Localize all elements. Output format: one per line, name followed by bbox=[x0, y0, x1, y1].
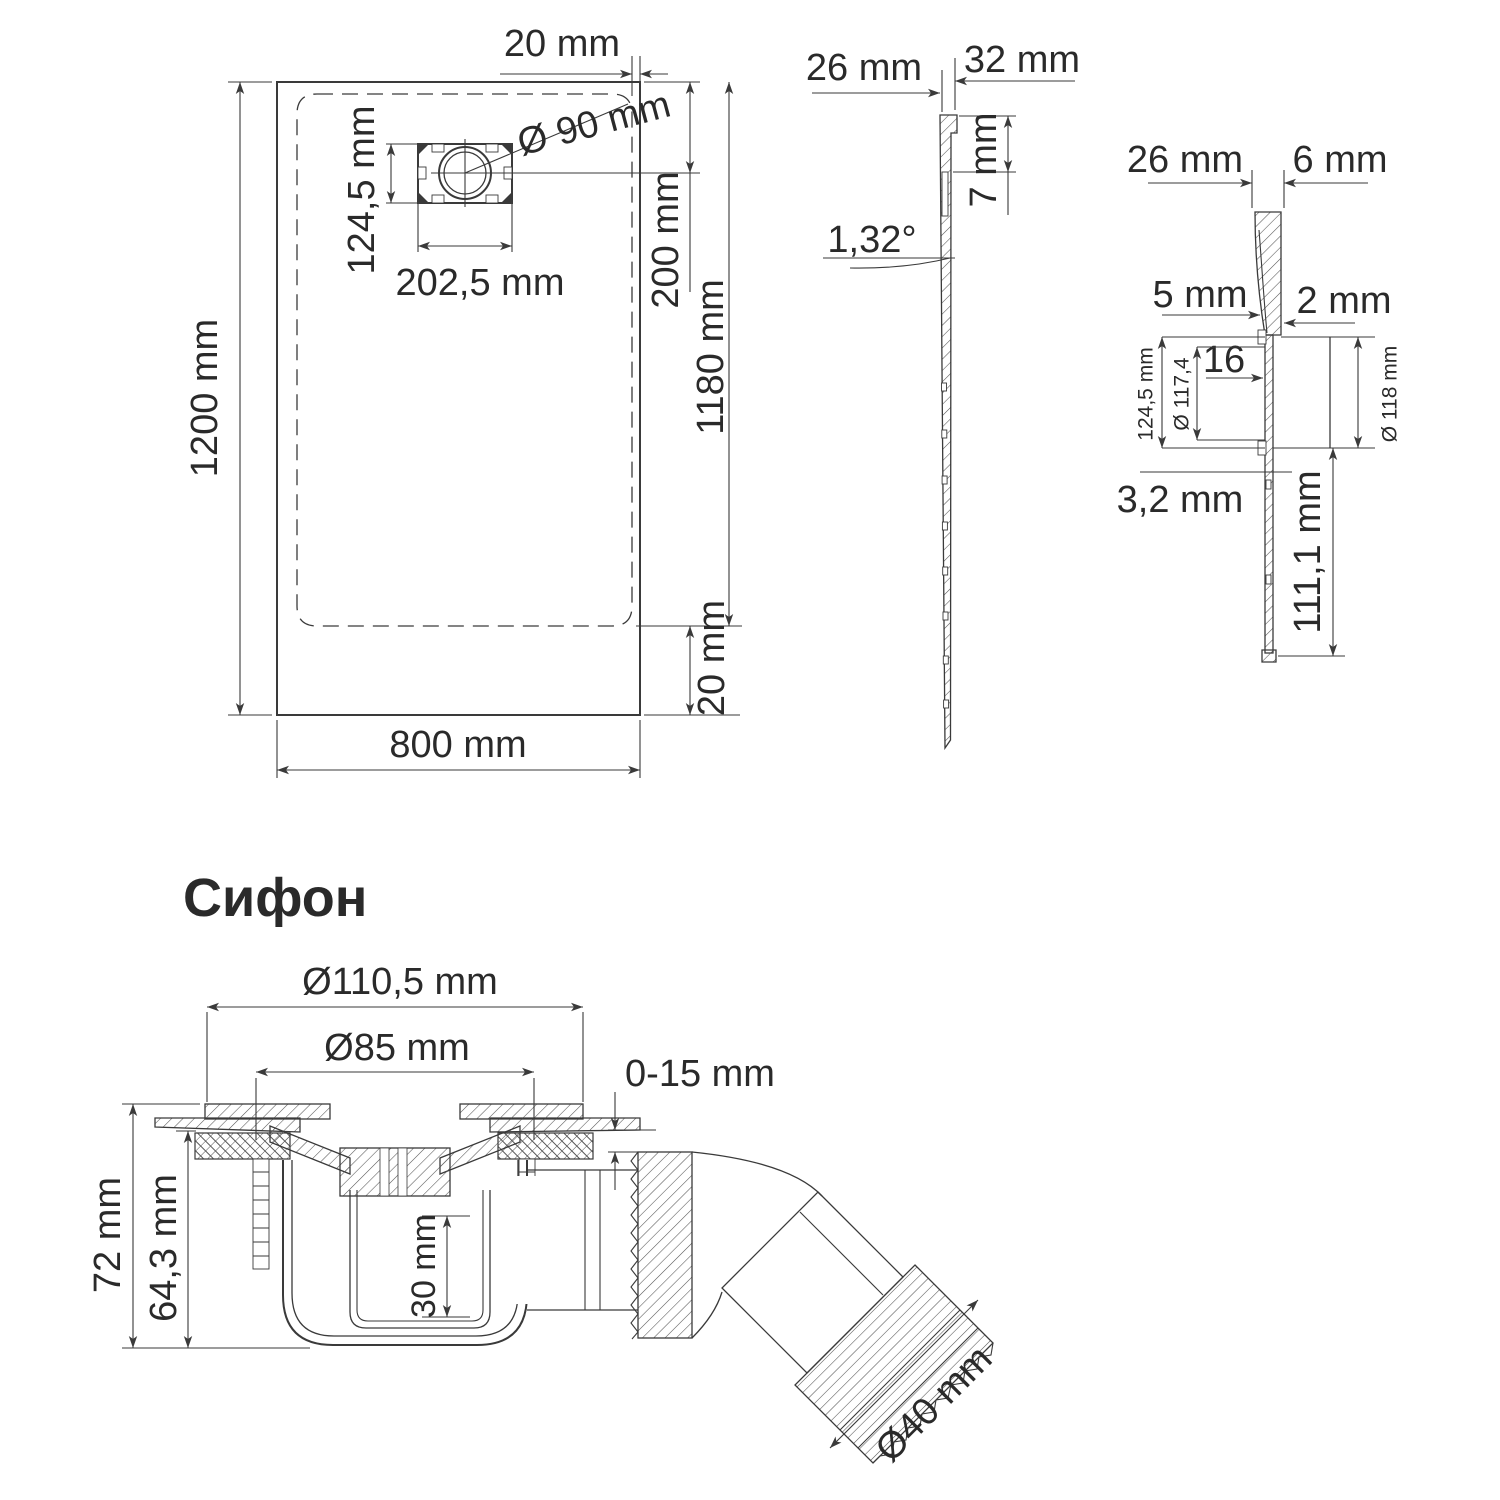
dim-siphon-trap-depth: 30 mm bbox=[405, 1214, 470, 1318]
dim-section-edge-height: 7 mm bbox=[953, 113, 1016, 216]
flange-plate-left bbox=[205, 1104, 330, 1119]
dim-label: 3,2 mm bbox=[1117, 479, 1244, 521]
dim-label: 800 mm bbox=[389, 724, 526, 766]
dim-label: 1,32° bbox=[827, 219, 916, 261]
dim-label: 16 bbox=[1203, 339, 1245, 381]
dim-label: 64,3 mm bbox=[143, 1174, 185, 1322]
dim-section-edge-top-width: 26 mm bbox=[806, 47, 942, 112]
section-notch bbox=[942, 383, 947, 391]
dim-plan-offset-bottom: 20 mm bbox=[644, 600, 740, 716]
dim-plan-drain-box-height: 124,5 mm bbox=[341, 106, 418, 275]
section-notch bbox=[942, 430, 947, 438]
dim-plan-length: 1200 mm bbox=[184, 82, 272, 715]
section-notch bbox=[943, 567, 948, 575]
grate-slot bbox=[398, 1148, 407, 1196]
dim-label: 20 mm bbox=[691, 600, 733, 716]
clamp-skirt-left bbox=[253, 1159, 269, 1269]
dim-label: 1200 mm bbox=[184, 319, 226, 477]
flange-plate-right bbox=[460, 1104, 583, 1119]
dim-label: 26 mm bbox=[1127, 139, 1243, 181]
dim-detail-gap: 2 mm bbox=[1284, 280, 1392, 323]
dim-label: 72 mm bbox=[87, 1177, 129, 1293]
dim-label: 30 mm bbox=[405, 1214, 443, 1318]
tray-outline bbox=[277, 82, 640, 715]
dim-label: 111,1 mm bbox=[1287, 470, 1329, 633]
section-notch bbox=[942, 522, 947, 530]
section-gasket bbox=[942, 172, 948, 216]
drain-notch bbox=[432, 195, 444, 203]
drain-notch bbox=[486, 195, 498, 203]
detail-view: 26 mm 6 mm 5 mm 2 mm 16 124,5 mm bbox=[1117, 139, 1402, 662]
drain-notch bbox=[486, 144, 498, 152]
dim-label: 1180 mm bbox=[690, 279, 732, 435]
dim-section-slope-angle: 1,32° bbox=[823, 219, 955, 268]
socket-mask bbox=[514, 1176, 640, 1304]
technical-drawing-page: 20 mm Ø 90 mm 124,5 mm 202,5 mm 200 bbox=[0, 0, 1500, 1500]
dim-label: 32 mm bbox=[964, 39, 1080, 81]
detail-notch bbox=[1266, 480, 1271, 489]
dim-label: 200 mm bbox=[645, 171, 687, 308]
section-view: 26 mm 32 mm 7 mm 1,32° bbox=[806, 39, 1080, 748]
dim-label: 20 mm bbox=[504, 23, 620, 65]
drawing-svg: 20 mm Ø 90 mm 124,5 mm 202,5 mm 200 bbox=[0, 0, 1500, 1500]
siphon-title: Сифон bbox=[183, 868, 367, 928]
dim-label: 5 mm bbox=[1153, 274, 1248, 316]
dim-label: 0-15 mm bbox=[625, 1053, 775, 1095]
dim-detail-hole-diameter: Ø 118 mm bbox=[1358, 337, 1402, 448]
dim-label: Ø 118 mm bbox=[1379, 346, 1402, 442]
section-notch bbox=[943, 612, 948, 620]
drain-notch bbox=[418, 167, 426, 179]
section-notch bbox=[943, 656, 948, 664]
dim-label: Ø 90 mm bbox=[513, 83, 675, 164]
dim-siphon-body-height: 64,3 mm bbox=[143, 1131, 196, 1348]
detail-skirt bbox=[1265, 335, 1273, 653]
dim-plan-drain-box-width: 202,5 mm bbox=[396, 203, 565, 304]
dim-detail-insert-depth: 16 bbox=[1203, 339, 1263, 381]
dim-plan-width: 800 mm bbox=[277, 720, 640, 778]
section-notch bbox=[944, 700, 949, 708]
plan-view: 20 mm Ø 90 mm 124,5 mm 202,5 mm 200 bbox=[184, 23, 742, 778]
dim-label: Ø85 mm bbox=[324, 1027, 470, 1069]
dim-label: 202,5 mm bbox=[396, 262, 565, 304]
dim-label: 26 mm bbox=[806, 47, 922, 89]
dim-detail-edge-lip-width: 6 mm bbox=[1284, 139, 1388, 208]
dim-plan-inner-length: 1180 mm bbox=[636, 82, 742, 626]
dim-detail-skirt-height: 111,1 mm bbox=[1278, 448, 1345, 656]
dim-detail-edge-top-width: 26 mm bbox=[1127, 139, 1252, 208]
dim-label: Ø110,5 mm bbox=[302, 961, 498, 1003]
dim-detail-lip-height: 5 mm bbox=[1153, 274, 1261, 316]
grate-section bbox=[340, 1148, 450, 1196]
dim-label: 2 mm bbox=[1297, 280, 1392, 322]
dim-label: Ø 117,4 bbox=[1171, 357, 1194, 430]
dim-label: 124,5 mm bbox=[1135, 347, 1158, 440]
union-nut bbox=[631, 1152, 692, 1339]
dim-label: 124,5 mm bbox=[341, 106, 383, 275]
siphon-view: Сифон bbox=[87, 868, 1000, 1470]
dim-plan-drain-diameter: Ø 90 mm bbox=[465, 83, 675, 173]
dim-label: 6 mm bbox=[1293, 139, 1388, 181]
detail-foot bbox=[1262, 650, 1276, 662]
grate-slot bbox=[380, 1148, 389, 1196]
drain-notch bbox=[432, 144, 444, 152]
dim-section-edge-total-width: 32 mm bbox=[955, 39, 1080, 110]
dim-label: 7 mm bbox=[963, 113, 1005, 208]
section-notch bbox=[942, 476, 947, 484]
detail-notch bbox=[1266, 575, 1271, 584]
dim-plan-offset-top: 20 mm bbox=[500, 23, 668, 96]
dim-detail-flange-height: 124,5 mm bbox=[1135, 337, 1266, 448]
